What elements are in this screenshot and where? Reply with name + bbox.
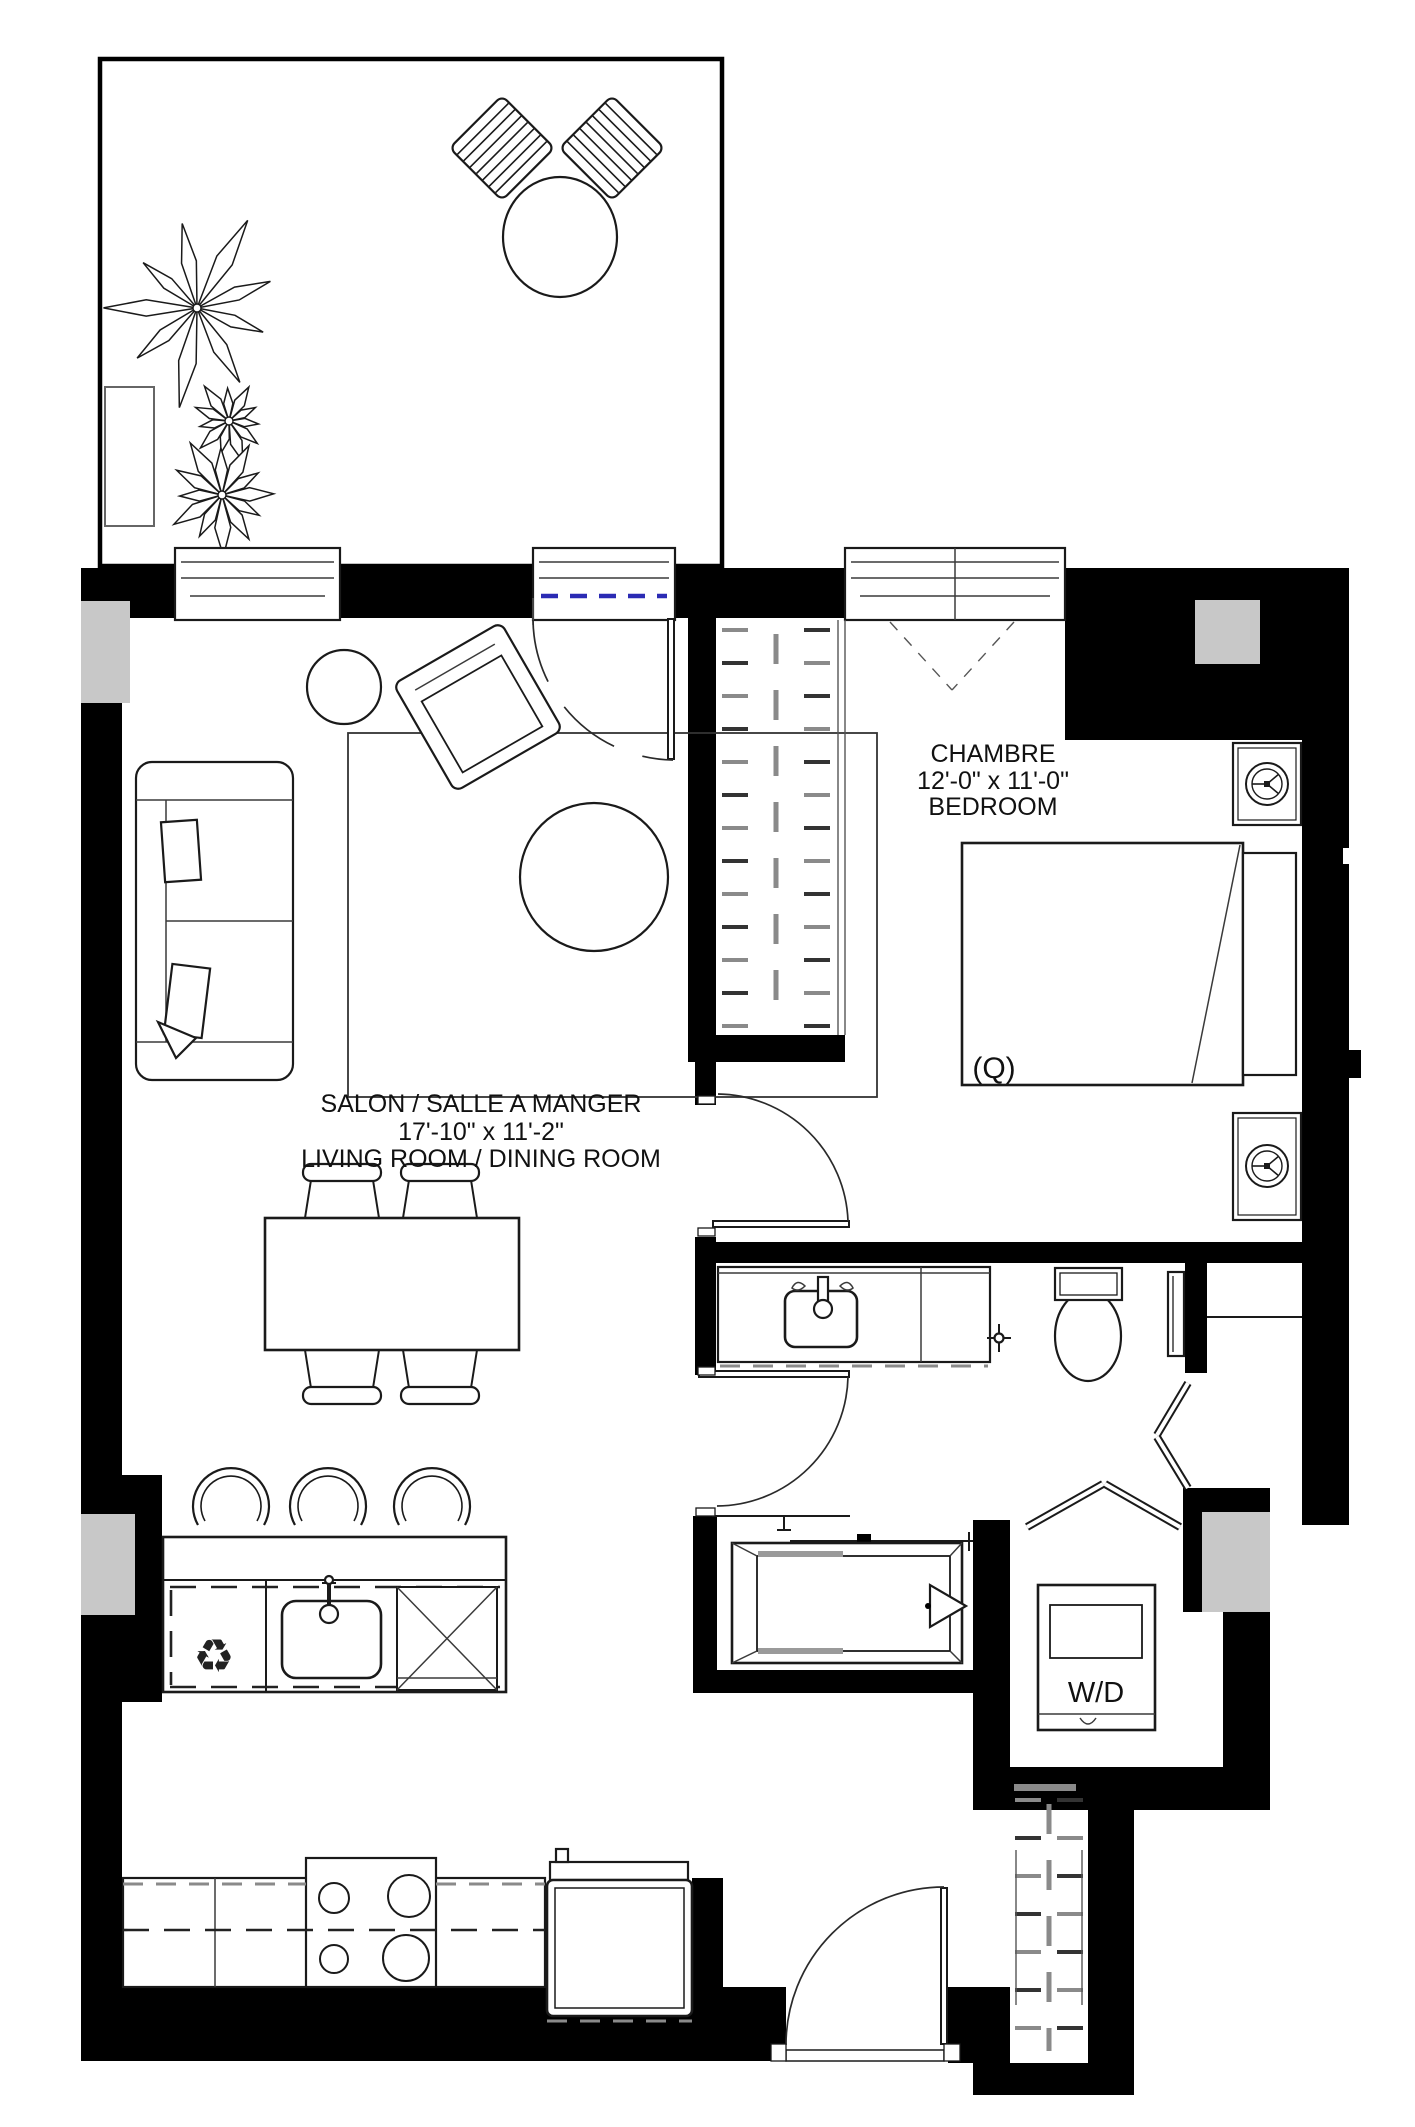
windows <box>175 548 1065 620</box>
shower-bifold-doors <box>1157 1383 1188 1488</box>
balcony <box>100 59 722 566</box>
bedroom-closet <box>722 630 830 1026</box>
kitchen-counter-bottom <box>123 1858 545 1987</box>
laundry-bifold-doors <box>1027 1484 1180 1527</box>
sofa-pillow-1 <box>161 820 201 882</box>
living-label-en: LIVING ROOM / DINING ROOM <box>301 1145 661 1173</box>
kitchen-island: ♻ <box>163 1537 506 1692</box>
planter-box <box>105 387 154 526</box>
toilet-icon <box>1055 1268 1122 1381</box>
floor-plan: SALON / SALLE A MANGER 17'-10" x 11'-2" … <box>0 0 1415 2127</box>
patio-door <box>533 548 675 620</box>
bar-stools <box>193 1468 470 1525</box>
bedroom-label-dim: 12'-0" x 11'-0" <box>917 767 1069 795</box>
wall-right <box>1302 740 1349 1525</box>
wall-bathroom-top <box>695 1242 1302 1263</box>
bed-size-label: (Q) <box>972 1052 1015 1085</box>
kitchen: ♻ <box>123 1468 692 2021</box>
bedroom-label-en: BEDROOM <box>928 793 1057 821</box>
coffee-table-icon <box>520 803 668 951</box>
washer-dryer-label: W/D <box>1068 1677 1124 1709</box>
dining-chair <box>303 1387 381 1404</box>
column-gray-4 <box>1202 1512 1270 1612</box>
mirror-icon <box>1168 1272 1184 1356</box>
dining-table-icon <box>265 1164 519 1404</box>
bedroom-door <box>712 1094 850 1224</box>
bathtub-icon <box>712 1516 973 1663</box>
bathroom-door <box>698 1374 850 1506</box>
living-label-dim: 17'-10" x 11'-2" <box>398 1118 564 1146</box>
sofa-icon <box>136 762 293 1080</box>
column-gray-3 <box>1195 600 1260 664</box>
lamp-icon <box>1246 763 1288 805</box>
stove-icon <box>306 1858 436 1987</box>
patio-table-icon <box>503 177 617 297</box>
bed-icon <box>962 843 1296 1085</box>
window-living <box>175 548 340 620</box>
dishwasher-icon <box>397 1587 497 1690</box>
living-label-fr: SALON / SALLE A MANGER <box>321 1090 642 1118</box>
recycle-icon: ♻ <box>193 1629 234 1683</box>
dining-chair <box>401 1387 479 1404</box>
column-gray-1 <box>81 601 130 703</box>
window-bedroom <box>845 548 1065 620</box>
headboard <box>1243 853 1296 1075</box>
wall-left <box>81 568 122 1987</box>
lamp-icon <box>1246 1145 1288 1187</box>
armchair-icon <box>393 622 562 791</box>
entry-closet <box>1014 1784 1083 2051</box>
column-gray-2 <box>81 1514 135 1615</box>
window-casement-marks <box>890 622 1014 690</box>
refrigerator-icon <box>547 1849 692 2021</box>
bedroom-label: CHAMBRE 12'-0" x 11'-0" BEDROOM <box>917 740 1069 821</box>
living-room-label: SALON / SALLE A MANGER 17'-10" x 11'-2" … <box>301 1090 661 1173</box>
washer-dryer-icon: W/D <box>1038 1585 1155 1730</box>
entry-threshold <box>786 2050 944 2061</box>
entry-door <box>786 1887 944 2061</box>
side-table-icon <box>307 650 381 724</box>
bedroom-label-fr: CHAMBRE <box>930 740 1055 768</box>
vanity-icon <box>718 1267 990 1366</box>
